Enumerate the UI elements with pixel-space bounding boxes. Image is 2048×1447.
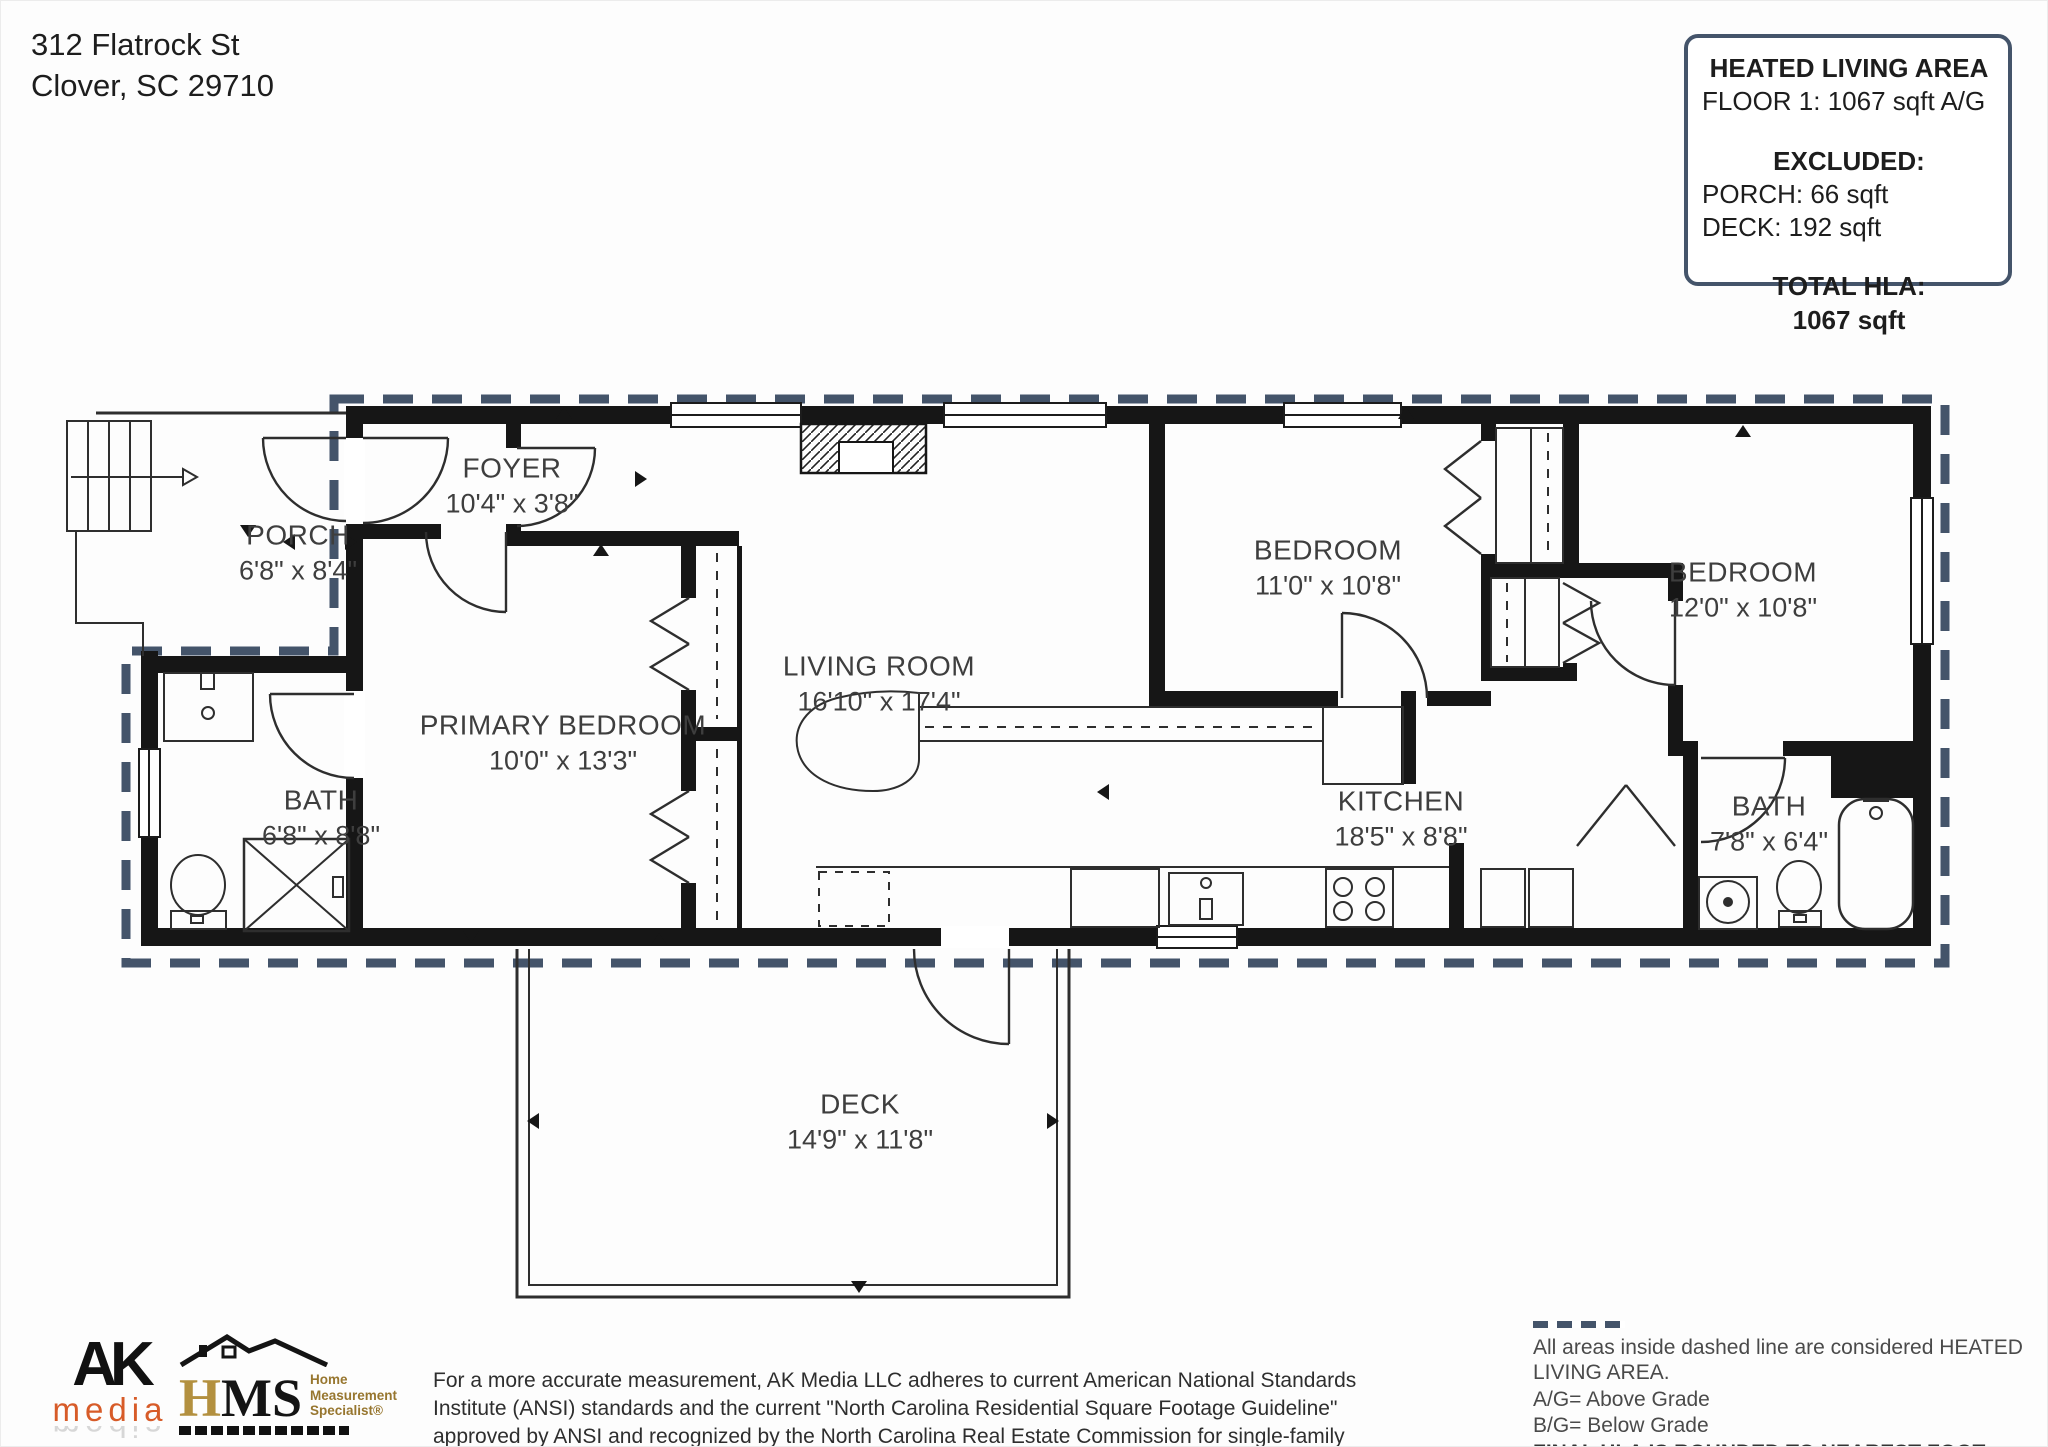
window (1284, 403, 1401, 427)
legend-final-hla: FINAL HLA IS ROUNDED TO NEAREST FOOT (1533, 1441, 2038, 1447)
heated-living-area-box: HEATED LIVING AREA FLOOR 1: 1067 sqft A/… (1684, 34, 2012, 286)
hla-excluded-title: EXCLUDED: (1702, 145, 1996, 178)
foyer-primary-door (426, 532, 506, 612)
hla-total-value: 1067 sqft (1702, 304, 1996, 337)
dimension-arrows (240, 407, 1751, 1293)
bathtub (1839, 799, 1913, 929)
vanity-sink (164, 673, 253, 741)
hla-floor-line: FLOOR 1: 1067 sqft A/G (1702, 85, 1996, 118)
kitchen-sink (1169, 873, 1243, 925)
address-line1: 312 Flatrock St (31, 25, 274, 66)
fireplace (801, 424, 926, 473)
round-sink (1699, 877, 1757, 929)
room-label-kitchen: KITCHEN 18'5" x 8'8" (1334, 786, 1467, 853)
room-label-bedroom2: BEDROOM 12'0" x 10'8" (1669, 557, 1817, 624)
window (944, 403, 1106, 427)
address-line2: Clover, SC 29710 (31, 66, 274, 107)
stove (1326, 869, 1393, 927)
legend-note: All areas inside dashed line are conside… (1533, 1336, 2038, 1386)
dashed-line-sample (1533, 1321, 1625, 1328)
bedroom1-door (1342, 613, 1427, 698)
window (1911, 498, 1933, 644)
bath1-door (270, 694, 354, 778)
heated-area-boundary (126, 399, 1945, 963)
hms-roof-icon (179, 1331, 329, 1367)
room-label-bath1: BATH 6'8" x 8'8" (262, 785, 380, 852)
toilet (171, 855, 226, 929)
legend-above-grade: A/G= Above Grade (1533, 1388, 2038, 1413)
hms-tagline: Home Measurement Specialist® (310, 1372, 397, 1419)
ak-logo-media-text: media (45, 1393, 175, 1426)
room-label-living-room: LIVING ROOM 16'10" x 17'4" (783, 651, 975, 718)
laundry-appliances (1481, 869, 1573, 927)
ak-logo-text: AK (45, 1337, 175, 1393)
shower (244, 839, 349, 931)
hla-excluded-porch: PORCH: 66 sqft (1702, 178, 1996, 211)
ak-logo-reflection: media (45, 1426, 175, 1442)
legend-below-grade: B/G= Below Grade (1533, 1414, 2038, 1439)
room-label-porch: PORCH 6'8" x 8'4" (239, 520, 357, 587)
room-label-foyer: FOYER 10'4" x 3'8" (445, 453, 578, 520)
window (1157, 926, 1237, 948)
hms-logo: HMS Home Measurement Specialist® (179, 1331, 389, 1435)
property-address: 312 Flatrock St Clover, SC 29710 (31, 25, 274, 107)
bedroom2-door (1591, 601, 1675, 685)
room-label-bath2: BATH 7'8" x 6'4" (1710, 791, 1828, 858)
toilet (1777, 861, 1821, 927)
measurement-disclaimer: For a more accurate measurement, AK Medi… (433, 1367, 1385, 1447)
hms-abbr: HMS (179, 1374, 302, 1423)
room-label-primary-bedroom: PRIMARY BEDROOM 10'0" x 13'3" (420, 710, 707, 777)
hla-title: HEATED LIVING AREA (1702, 52, 1996, 85)
ak-media-logo: AK media media (45, 1337, 175, 1442)
floor-plan-page: 312 Flatrock St Clover, SC 29710 HEATED … (0, 0, 2048, 1447)
walls (141, 406, 1931, 946)
plan-legend: All areas inside dashed line are conside… (1533, 1321, 2038, 1447)
front-entry-door (363, 438, 448, 523)
window (671, 403, 801, 427)
window (139, 749, 160, 837)
hla-total-title: TOTAL HLA: (1702, 270, 1996, 303)
room-label-bedroom1: BEDROOM 11'0" x 10'8" (1254, 535, 1402, 602)
laundry-double-doors (1577, 785, 1675, 846)
room-label-deck: DECK 14'9" x 11'8" (787, 1089, 933, 1156)
hla-excluded-deck: DECK: 192 sqft (1702, 211, 1996, 244)
